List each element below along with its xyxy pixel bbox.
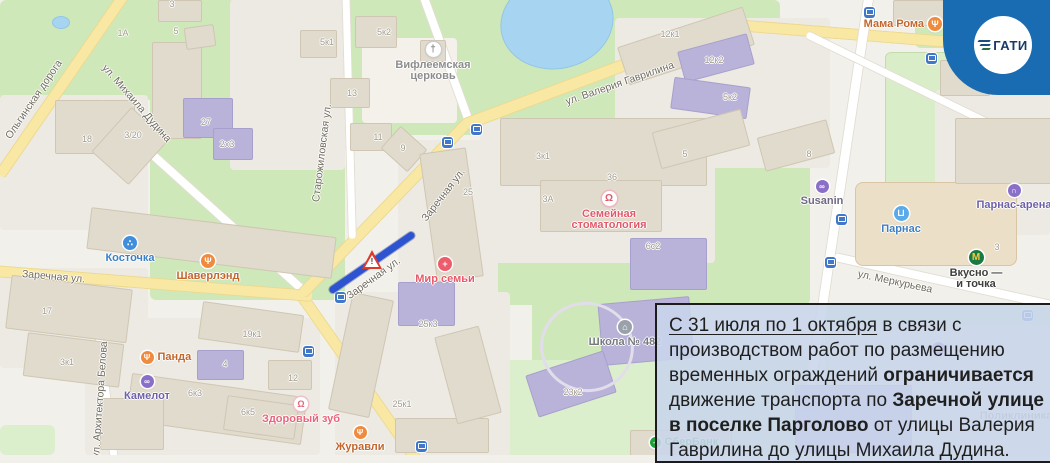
bold-text: ограничивается	[883, 365, 1034, 386]
restriction-text: С 31 июля по 1 октября в связи спроизвод…	[669, 315, 1044, 461]
text: движение транспорта по	[669, 390, 892, 411]
gati-logo-circle: ГАТИ	[974, 16, 1032, 74]
i	[981, 48, 991, 50]
poi-label-mir-semyi[interactable]: Мир семьи	[415, 274, 474, 285]
poi-label-line: Панда	[158, 352, 192, 363]
building-label: 13	[347, 88, 357, 98]
poi-label-line: Парнас-арена	[976, 200, 1050, 211]
bus-glyph	[418, 443, 426, 449]
poi-label-parnas[interactable]: Парнас	[881, 224, 921, 235]
text: временных ограждений	[669, 365, 883, 386]
building-label: 2х3	[220, 139, 235, 149]
poi-label-parnas-arena[interactable]: Парнас-арена	[976, 200, 1050, 211]
bus-stop-icon[interactable]	[864, 7, 875, 18]
building-label: 5	[173, 26, 178, 36]
i	[977, 40, 991, 42]
bus-glyph	[928, 55, 936, 61]
building-label: 27	[201, 117, 211, 127]
poi-label-line: Школа № 482	[589, 337, 662, 348]
bus-stop-icon[interactable]	[303, 346, 314, 357]
building	[100, 398, 164, 450]
poi-label-panda[interactable]: Панда	[158, 352, 192, 363]
poi-icon-semeynaya-stomatologiya[interactable]: Ω	[602, 191, 617, 206]
building	[197, 350, 244, 380]
poi-icon-zdorovy-zub[interactable]: Ω	[294, 397, 308, 411]
poi-icon-shaverlend[interactable]: Ψ	[201, 254, 215, 268]
bus-stop-icon[interactable]	[926, 53, 937, 64]
poi-label-mama-roma[interactable]: Мама Рома	[864, 19, 924, 30]
building-label: 6с2	[646, 241, 661, 251]
bus-stop-icon[interactable]	[825, 257, 836, 268]
bold-text: Заречной улице	[892, 390, 1044, 411]
text: в связи с	[877, 315, 961, 336]
text: от улицы Валерия	[868, 415, 1034, 436]
poi-icon-zhuravli[interactable]: Ψ	[354, 426, 367, 439]
building-label: 6к3	[188, 388, 202, 398]
poi-label-line: Здоровый зуб	[262, 414, 340, 425]
building-label: 25к3	[419, 319, 438, 329]
poi-label-line: Susanin	[801, 196, 844, 207]
poi-label-vkusno-i-tochka[interactable]: Вкусно —и точка	[950, 268, 1003, 290]
building	[955, 118, 1050, 184]
poi-label-line: Мама Рома	[864, 19, 924, 30]
poi-label-line: стоматология	[571, 220, 646, 231]
poi-icon-shkola-482[interactable]: ⌂	[618, 320, 632, 334]
bus-glyph	[337, 294, 345, 300]
building-label: 12к2	[705, 55, 724, 65]
poi-label-line: Косточка	[105, 253, 154, 264]
poi-icon-vkusno-i-tochka[interactable]: М	[969, 250, 984, 265]
building-label: 3	[169, 0, 174, 9]
bus-glyph	[827, 259, 835, 265]
bus-stop-icon[interactable]	[335, 292, 346, 303]
building	[158, 0, 202, 22]
building-label: 3к1	[60, 357, 74, 367]
poi-icon-parnas[interactable]: ⊔	[894, 206, 909, 221]
bus-glyph	[838, 216, 846, 222]
poi-icon-kamelot[interactable]: ∞	[141, 375, 154, 388]
park-area	[0, 425, 55, 455]
poi-icon-mama-roma[interactable]: Ψ	[928, 17, 942, 31]
poi-label-shkola-482[interactable]: Школа № 482	[589, 337, 662, 348]
building-label: 3к1	[536, 151, 550, 161]
parnas-mall-building	[855, 182, 1017, 266]
poi-label-line: Камелот	[124, 391, 170, 402]
poi-label-kamelot[interactable]: Камелот	[124, 391, 170, 402]
building-label: 5к1	[320, 37, 334, 47]
building-label: 17	[42, 306, 52, 316]
poi-icon-mir-semyi[interactable]: +	[438, 257, 452, 271]
roadworks-warning-icon[interactable]: !	[362, 250, 382, 269]
underlined-dates: С 31 июля по 1 октября	[669, 315, 877, 336]
building-label: 12	[288, 373, 298, 383]
building-label: 25	[463, 187, 473, 197]
building-label: 8	[806, 149, 811, 159]
poi-icon-parnas-arena[interactable]: ∩	[1008, 184, 1021, 197]
building-label: 6к5	[241, 407, 255, 417]
building-label: 12к1	[661, 29, 680, 39]
building-label: 9	[400, 143, 405, 153]
poi-label-line: и точка	[950, 279, 1003, 290]
building-label: 23к2	[564, 387, 583, 397]
poi-label-zdorovy-zub[interactable]: Здоровый зуб	[262, 414, 340, 425]
restriction-announcement: С 31 июля по 1 октября в связи спроизвод…	[655, 303, 1050, 463]
building-label: 5	[682, 149, 687, 159]
text: Гаврилина до улицы Михаила Дудина.	[669, 440, 1010, 461]
text: производством работ по размещению	[669, 340, 1005, 361]
building-label: 19к1	[243, 329, 262, 339]
bus-stop-icon[interactable]	[442, 137, 453, 148]
building-label: 5к2	[723, 92, 737, 102]
poi-label-bethlehem-church[interactable]: Вифлеемскаяцерковь	[395, 60, 470, 82]
building-label: 5к2	[377, 27, 391, 37]
building-label: 3/20	[124, 130, 142, 140]
bus-glyph	[866, 9, 874, 15]
gati-logo-text: ГАТИ	[993, 38, 1028, 53]
poi-label-kostochka[interactable]: Косточка	[105, 253, 154, 264]
pond	[52, 16, 70, 29]
bus-glyph	[305, 348, 313, 354]
building-label: 36	[607, 172, 617, 182]
poi-icon-panda[interactable]: Ψ	[141, 351, 154, 364]
poi-label-line: Парнас	[881, 224, 921, 235]
poi-label-zhuravli[interactable]: Журавли	[335, 442, 384, 453]
bus-stop-icon[interactable]	[416, 441, 427, 452]
gati-stripes-icon	[978, 40, 990, 50]
poi-label-line: церковь	[395, 71, 470, 82]
building	[630, 238, 707, 290]
building-label: 11	[373, 132, 382, 142]
building-label: 25к1	[393, 399, 412, 409]
poi-label-line: Журавли	[335, 442, 384, 453]
building-label: 1А	[117, 28, 128, 38]
building	[184, 24, 217, 50]
building-label: 4	[222, 359, 227, 369]
poi-label-line: Шаверлэнд	[176, 271, 239, 282]
poi-icon-bethlehem-church[interactable]: †	[426, 42, 441, 57]
poi-icon-susanin[interactable]: ∞	[816, 180, 829, 193]
building	[395, 418, 489, 453]
bus-glyph	[473, 126, 481, 132]
building-label: 18	[82, 134, 92, 144]
poi-label-susanin[interactable]: Susanin	[801, 196, 844, 207]
triangle-glyph: !	[362, 257, 382, 266]
poi-label-shaverlend[interactable]: Шаверлэнд	[176, 271, 239, 282]
bus-stop-icon[interactable]	[471, 124, 482, 135]
poi-icon-kostochka[interactable]: ∴	[123, 236, 137, 250]
building-label: 3	[994, 242, 999, 252]
poi-label-line: Мир семьи	[415, 274, 474, 285]
poi-label-semeynaya-stomatologiya[interactable]: Семейнаястоматология	[571, 209, 646, 231]
bold-text: в поселке Парголово	[669, 415, 868, 436]
bus-stop-icon[interactable]	[836, 214, 847, 225]
building-label: 3А	[542, 194, 553, 204]
i	[979, 44, 991, 46]
bus-glyph	[444, 139, 452, 145]
